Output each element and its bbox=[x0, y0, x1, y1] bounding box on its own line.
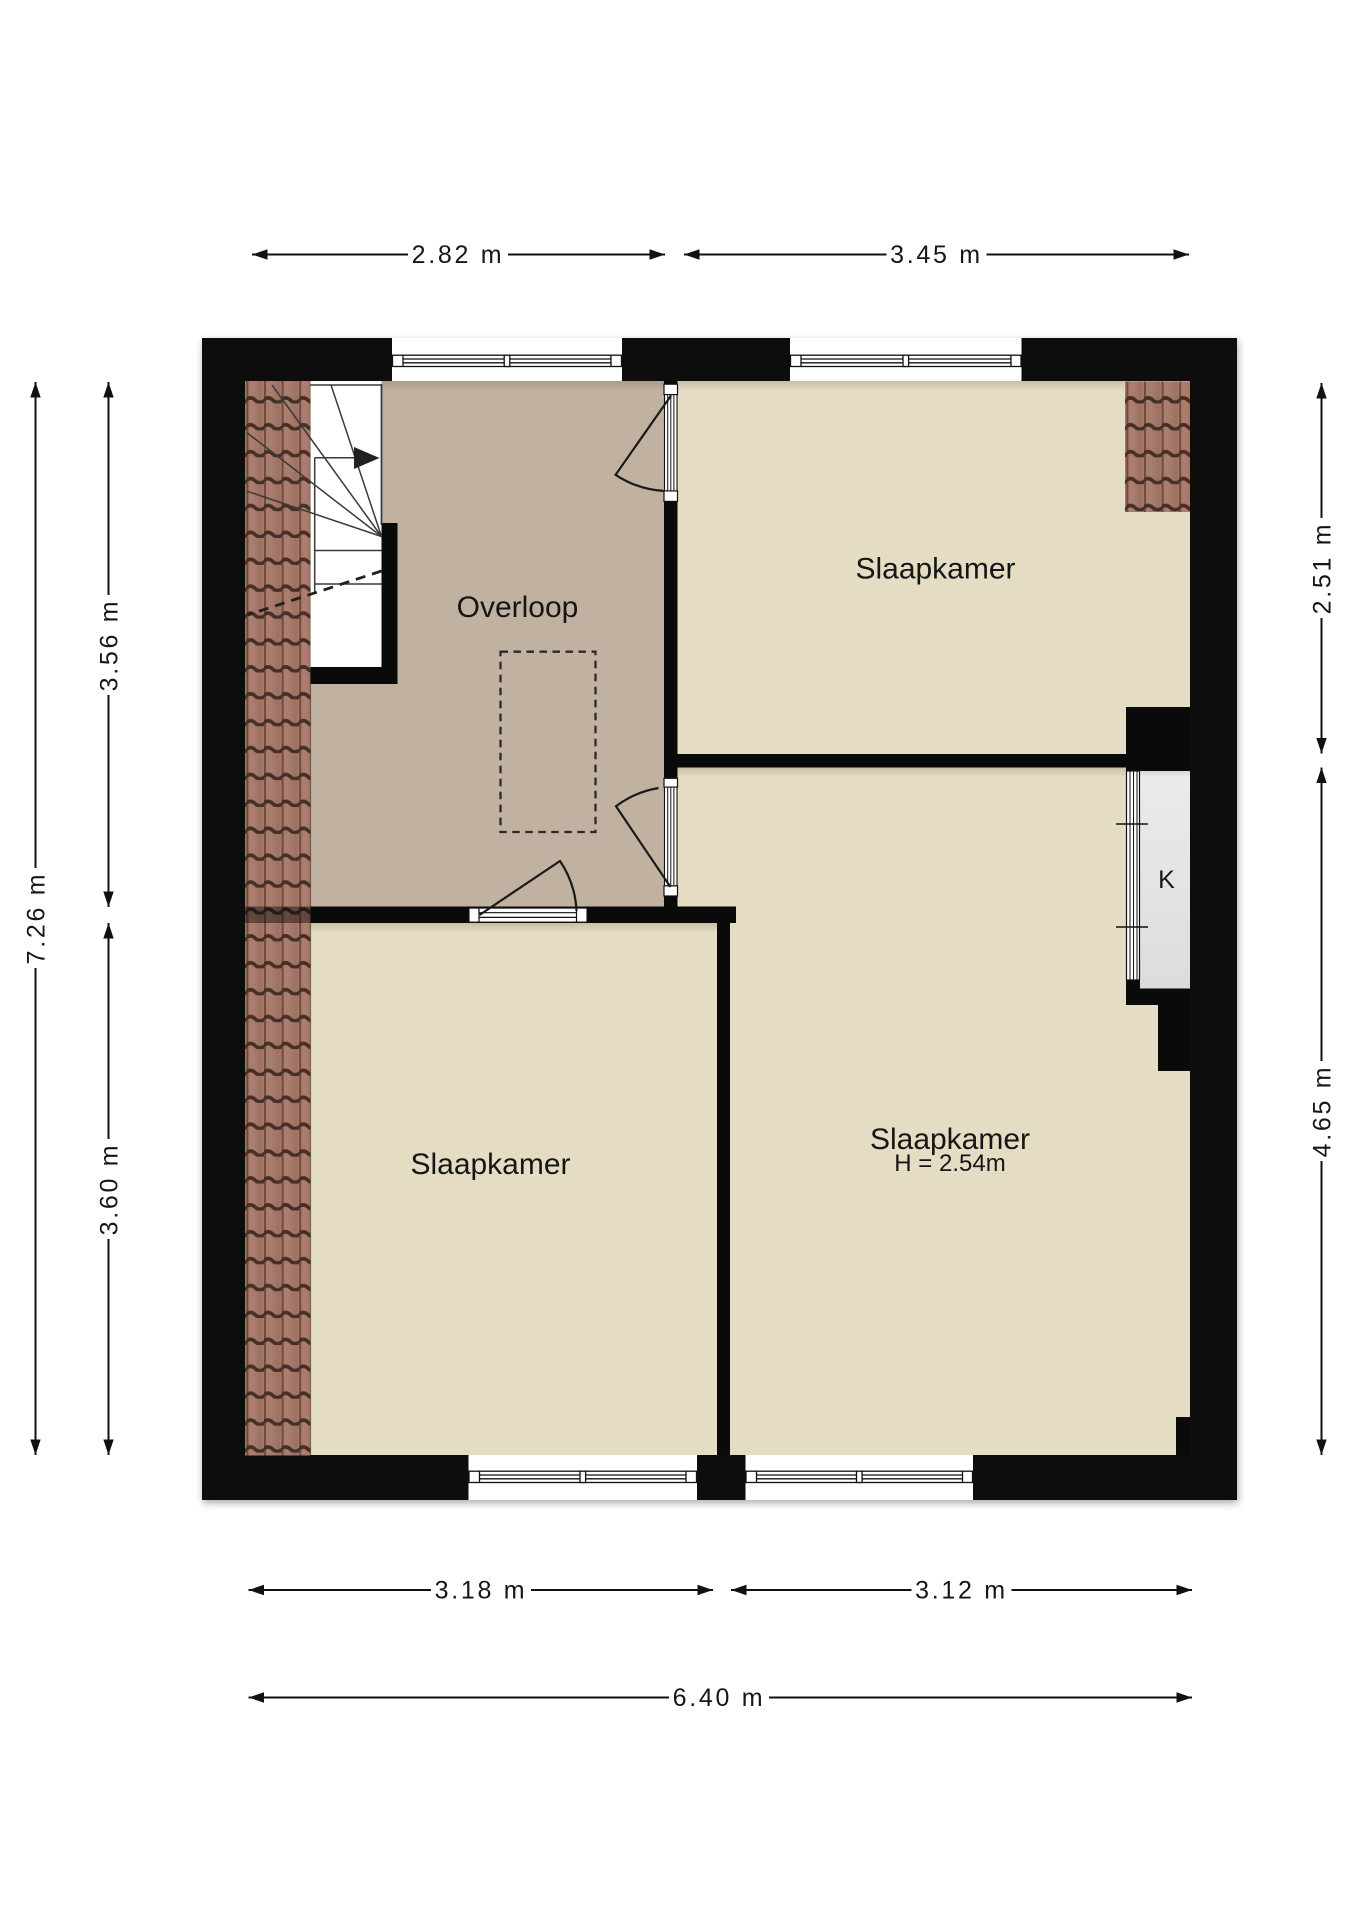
svg-text:3.45 m: 3.45 m bbox=[890, 241, 983, 269]
svg-text:Slaapkamer: Slaapkamer bbox=[410, 1148, 570, 1181]
svg-text:Slaapkamer: Slaapkamer bbox=[855, 553, 1015, 586]
svg-text:3.56 m: 3.56 m bbox=[96, 599, 124, 692]
svg-text:6.40 m: 6.40 m bbox=[673, 1684, 766, 1712]
svg-text:3.60 m: 3.60 m bbox=[96, 1143, 124, 1236]
svg-text:Overloop: Overloop bbox=[457, 591, 579, 624]
svg-text:3.12 m: 3.12 m bbox=[915, 1577, 1008, 1605]
svg-text:2.82 m: 2.82 m bbox=[412, 241, 505, 269]
svg-text:3.18 m: 3.18 m bbox=[435, 1577, 528, 1605]
svg-text:H = 2.54m: H = 2.54m bbox=[894, 1150, 1005, 1177]
svg-text:K: K bbox=[1158, 866, 1175, 894]
svg-text:4.65 m: 4.65 m bbox=[1309, 1065, 1337, 1158]
svg-text:7.26 m: 7.26 m bbox=[23, 872, 51, 965]
svg-text:2.51 m: 2.51 m bbox=[1309, 522, 1337, 615]
